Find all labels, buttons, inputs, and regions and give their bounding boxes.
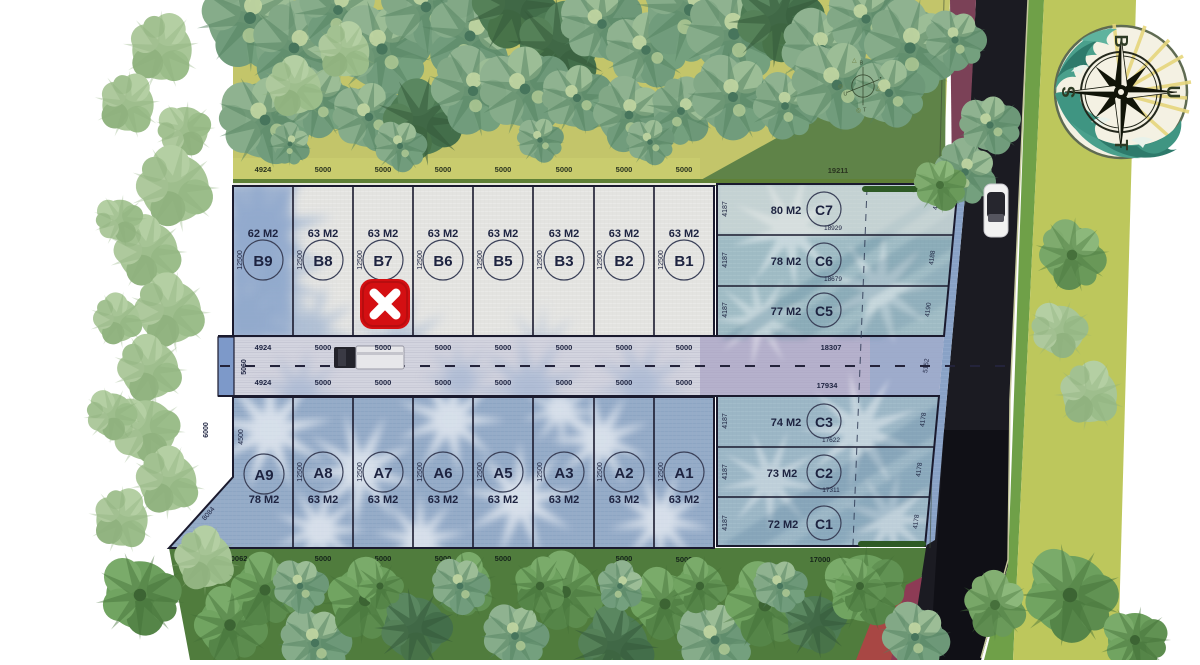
- svg-text:A3: A3: [554, 465, 573, 482]
- svg-text:19211: 19211: [828, 166, 848, 175]
- svg-text:5000: 5000: [315, 343, 332, 352]
- svg-text:12500: 12500: [357, 462, 364, 482]
- svg-text:63 M2: 63 M2: [609, 228, 640, 240]
- svg-text:5000: 5000: [495, 343, 512, 352]
- svg-text:5000: 5000: [616, 165, 633, 174]
- svg-text:18679: 18679: [824, 276, 842, 283]
- svg-text:B2: B2: [614, 253, 633, 270]
- svg-text:◎: ◎: [838, 84, 843, 90]
- svg-text:12500: 12500: [297, 462, 304, 482]
- svg-text:18929: 18929: [824, 225, 842, 232]
- svg-text:4924: 4924: [255, 378, 273, 387]
- svg-text:C2: C2: [815, 465, 833, 481]
- svg-text:B5: B5: [493, 253, 512, 270]
- svg-text:5000: 5000: [495, 165, 512, 174]
- svg-text:73 M2: 73 M2: [767, 468, 798, 480]
- svg-text:4500: 4500: [238, 429, 245, 445]
- svg-text:5000: 5000: [676, 343, 693, 352]
- svg-text:5000: 5000: [435, 343, 452, 352]
- svg-text:5000: 5000: [315, 165, 332, 174]
- svg-text:4187: 4187: [722, 515, 729, 531]
- svg-text:12500: 12500: [417, 462, 424, 482]
- svg-text:5000: 5000: [676, 165, 693, 174]
- svg-text:B3: B3: [554, 253, 573, 270]
- svg-text:A8: A8: [313, 465, 332, 482]
- svg-text:12500: 12500: [597, 250, 604, 270]
- svg-text:12500: 12500: [417, 250, 424, 270]
- svg-text:5000: 5000: [556, 343, 573, 352]
- svg-text:C1: C1: [815, 516, 833, 532]
- svg-text:5000: 5000: [556, 165, 573, 174]
- svg-text:72 M2: 72 M2: [768, 519, 799, 531]
- svg-text:63 M2: 63 M2: [308, 228, 339, 240]
- svg-text:5000: 5000: [556, 378, 573, 387]
- svg-text:12500: 12500: [477, 462, 484, 482]
- svg-text:5000: 5000: [495, 378, 512, 387]
- svg-text:74 M2: 74 M2: [771, 417, 802, 429]
- svg-text:B1: B1: [674, 253, 693, 270]
- svg-text:12500: 12500: [237, 250, 244, 270]
- svg-text:A1: A1: [674, 465, 693, 482]
- svg-text:C6: C6: [815, 253, 833, 269]
- svg-text:63 M2: 63 M2: [549, 228, 580, 240]
- svg-text:A6: A6: [433, 465, 452, 482]
- svg-text:80 M2: 80 M2: [771, 205, 802, 217]
- svg-text:5000: 5000: [435, 165, 452, 174]
- svg-text:63 M2: 63 M2: [308, 494, 339, 506]
- svg-text:B: B: [1111, 35, 1131, 48]
- svg-text:63 M2: 63 M2: [368, 494, 399, 506]
- svg-text:T: T: [1111, 140, 1131, 151]
- svg-text:C5: C5: [815, 303, 833, 319]
- svg-text:S: S: [1059, 86, 1079, 98]
- svg-text:△: △: [852, 58, 857, 64]
- svg-text:5000: 5000: [375, 378, 392, 387]
- svg-text:T: T: [863, 108, 867, 114]
- svg-text:5000: 5000: [676, 378, 693, 387]
- svg-text:4924: 4924: [255, 165, 273, 174]
- svg-text:A7: A7: [373, 465, 392, 482]
- svg-text:B8: B8: [313, 253, 332, 270]
- svg-text:78 M2: 78 M2: [771, 256, 802, 268]
- svg-text:12500: 12500: [477, 250, 484, 270]
- svg-text:63 M2: 63 M2: [488, 494, 519, 506]
- svg-text:12500: 12500: [658, 462, 665, 482]
- svg-text:12500: 12500: [597, 462, 604, 482]
- svg-text:U: U: [1163, 86, 1183, 99]
- svg-text:12500: 12500: [357, 250, 364, 270]
- svg-text:5000: 5000: [375, 343, 392, 352]
- svg-text:5000: 5000: [495, 554, 512, 563]
- svg-text:12500: 12500: [537, 250, 544, 270]
- svg-text:C7: C7: [815, 202, 833, 218]
- svg-text:63 M2: 63 M2: [428, 494, 459, 506]
- svg-text:5000: 5000: [375, 165, 392, 174]
- svg-text:B9: B9: [253, 253, 272, 270]
- svg-text:6000: 6000: [203, 422, 210, 438]
- svg-text:A9: A9: [254, 467, 273, 484]
- svg-text:63 M2: 63 M2: [669, 494, 700, 506]
- svg-text:U: U: [843, 92, 847, 98]
- svg-text:17311: 17311: [822, 487, 840, 494]
- svg-text:63 M2: 63 M2: [609, 494, 640, 506]
- svg-text:4924: 4924: [255, 343, 273, 352]
- svg-text:17934: 17934: [817, 381, 839, 390]
- svg-text:A5: A5: [493, 465, 512, 482]
- svg-text:5000: 5000: [616, 378, 633, 387]
- svg-text:17000: 17000: [810, 555, 831, 564]
- svg-text:B: B: [860, 60, 864, 66]
- svg-text:5000: 5000: [435, 378, 452, 387]
- svg-text:62 M2: 62 M2: [248, 228, 279, 240]
- svg-text:4187: 4187: [722, 464, 729, 480]
- svg-text:5000: 5000: [616, 343, 633, 352]
- svg-text:•: •: [880, 76, 882, 82]
- svg-text:12500: 12500: [297, 250, 304, 270]
- svg-text:78 M2: 78 M2: [249, 494, 280, 506]
- svg-text:4187: 4187: [722, 302, 729, 318]
- svg-text:◎: ◎: [856, 108, 861, 114]
- svg-text:4187: 4187: [722, 252, 729, 268]
- svg-text:B6: B6: [433, 253, 452, 270]
- svg-text:A2: A2: [614, 465, 633, 482]
- svg-text:63 M2: 63 M2: [488, 228, 519, 240]
- svg-text:63 M2: 63 M2: [549, 494, 580, 506]
- svg-text:12500: 12500: [658, 250, 665, 270]
- svg-text:63 M2: 63 M2: [428, 228, 459, 240]
- svg-text:5000: 5000: [315, 378, 332, 387]
- svg-text:4187: 4187: [722, 413, 729, 429]
- svg-text:5000: 5000: [315, 554, 332, 563]
- svg-text:77 M2: 77 M2: [771, 306, 802, 318]
- svg-text:4187: 4187: [722, 201, 729, 217]
- svg-text:12500: 12500: [537, 462, 544, 482]
- svg-text:17622: 17622: [822, 437, 840, 444]
- svg-text:63 M2: 63 M2: [669, 228, 700, 240]
- svg-text:△: △: [876, 86, 881, 92]
- svg-text:C3: C3: [815, 414, 833, 430]
- svg-text:5060: 5060: [241, 359, 248, 375]
- svg-text:18307: 18307: [821, 343, 842, 352]
- svg-text:B7: B7: [373, 253, 392, 270]
- svg-text:63 M2: 63 M2: [368, 228, 399, 240]
